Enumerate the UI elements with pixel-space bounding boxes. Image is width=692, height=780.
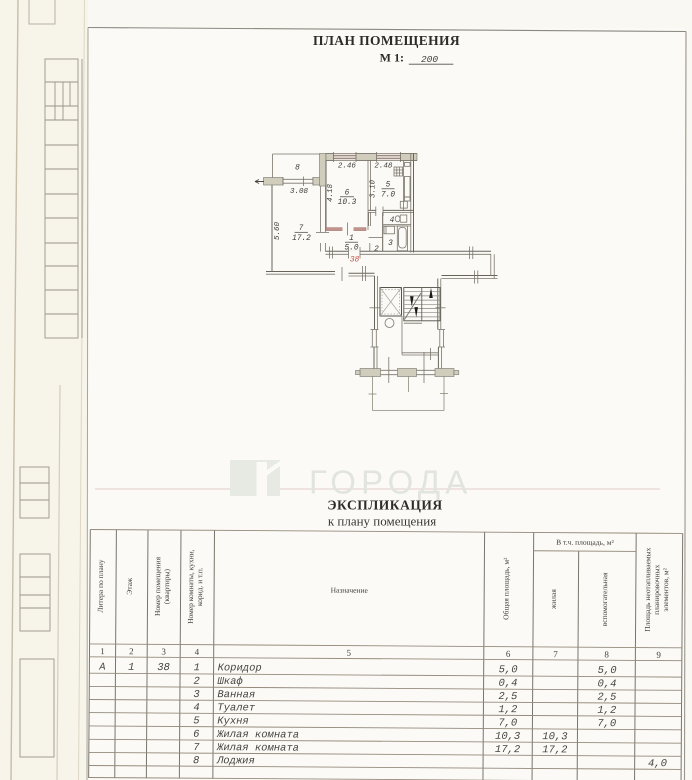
svg-text:6: 6 (345, 190, 350, 198)
svg-text:к плану помещения: к плану помещения (328, 514, 436, 529)
svg-text:1: 1 (349, 235, 354, 243)
svg-text:7: 7 (299, 225, 304, 233)
svg-text:5.60: 5.60 (274, 222, 282, 241)
svg-text:6: 6 (193, 729, 199, 741)
svg-text:Шкаф: Шкаф (216, 675, 243, 688)
svg-text:ГОРОДА: ГОРОДА (309, 464, 472, 501)
svg-text:5: 5 (193, 715, 200, 727)
svg-text:7,0: 7,0 (597, 718, 616, 730)
svg-text:8: 8 (604, 649, 609, 659)
svg-text:Этаж: Этаж (125, 577, 134, 595)
svg-text:10,3: 10,3 (542, 731, 567, 743)
svg-text:5: 5 (347, 648, 352, 658)
svg-text:0,4: 0,4 (498, 678, 517, 690)
svg-text:200: 200 (421, 54, 438, 65)
svg-text:Коридор: Коридор (218, 662, 262, 674)
svg-text:10.3: 10.3 (338, 199, 357, 207)
svg-text:6: 6 (506, 649, 511, 659)
svg-text:8: 8 (193, 755, 199, 767)
svg-text:2,5: 2,5 (597, 692, 617, 704)
svg-text:17,2: 17,2 (495, 744, 520, 756)
svg-text:7.0: 7.0 (381, 192, 395, 200)
svg-text:планировочных: планировочных (652, 564, 661, 615)
svg-text:0,4: 0,4 (597, 678, 616, 690)
svg-text:2.46: 2.46 (338, 163, 357, 171)
svg-text:1,2: 1,2 (498, 704, 517, 716)
svg-text:3.10: 3.10 (369, 180, 377, 199)
svg-text:Жилая комната: Жилая комната (216, 742, 299, 755)
svg-text:7: 7 (553, 649, 558, 659)
svg-text:1: 1 (100, 646, 105, 656)
svg-text:корид. и т.п.: корид. и т.п. (195, 567, 204, 606)
svg-text:4: 4 (195, 647, 200, 657)
svg-text:2.48: 2.48 (374, 163, 393, 171)
svg-text:Кухня: Кухня (217, 716, 249, 728)
svg-text:2,5: 2,5 (498, 691, 518, 703)
svg-text:4: 4 (390, 217, 395, 225)
svg-text:3: 3 (161, 646, 166, 656)
svg-text:В т.ч. площадь, м²: В т.ч. площадь, м² (556, 538, 614, 547)
svg-text:38: 38 (350, 256, 360, 265)
svg-text:7: 7 (193, 742, 200, 754)
svg-text:Номер помещения: Номер помещения (153, 556, 162, 616)
svg-text:ЭКСПЛИКАЦИЯ: ЭКСПЛИКАЦИЯ (327, 498, 442, 513)
svg-text:Назначение: Назначение (331, 586, 369, 595)
svg-text:5,0: 5,0 (499, 664, 518, 676)
svg-text:(квартиры): (квартиры) (162, 568, 171, 604)
svg-text:38: 38 (157, 662, 170, 674)
svg-text:7,0: 7,0 (498, 717, 517, 729)
svg-text:Ванная: Ванная (217, 689, 255, 701)
svg-text:вспомогательная: вспомогательная (600, 572, 609, 626)
svg-text:Площадь неотапливаемых: Площадь неотапливаемых (643, 547, 653, 631)
svg-text:Лоджия: Лоджия (216, 755, 255, 767)
svg-text:Жилая комната: Жилая комната (216, 729, 299, 742)
svg-text:жилая: жилая (549, 589, 558, 610)
svg-text:10,3: 10,3 (495, 731, 520, 743)
svg-text:Общая площадь, м²: Общая площадь, м² (501, 557, 510, 620)
svg-text:3: 3 (388, 240, 393, 248)
svg-text:17.2: 17.2 (292, 235, 311, 243)
svg-text:2: 2 (129, 646, 134, 656)
svg-text:2: 2 (374, 246, 379, 254)
svg-text:17,2: 17,2 (542, 744, 567, 756)
svg-text:2: 2 (194, 676, 200, 688)
svg-text:4,0: 4,0 (648, 758, 667, 770)
svg-text:Литера по плану: Литера по плану (96, 559, 105, 612)
svg-text:1: 1 (194, 662, 200, 674)
svg-text:1,2: 1,2 (597, 705, 616, 717)
svg-text:3: 3 (193, 689, 199, 701)
svg-text:М 1:: М 1: (380, 51, 404, 65)
svg-text:элементов, м²: элементов, м² (661, 567, 670, 611)
svg-text:9: 9 (656, 650, 661, 660)
svg-text:5,0: 5,0 (598, 665, 617, 677)
svg-text:4: 4 (193, 702, 199, 714)
svg-text:Номер комнаты, кухни,: Номер комнаты, кухни, (186, 549, 195, 624)
svg-text:ПЛАН ПОМЕЩЕНИЯ: ПЛАН ПОМЕЩЕНИЯ (313, 33, 460, 48)
svg-text:Туалет: Туалет (217, 702, 256, 714)
svg-text:4.18: 4.18 (327, 184, 335, 203)
svg-text:5: 5 (386, 182, 391, 190)
svg-text:А: А (98, 662, 105, 674)
svg-text:1: 1 (128, 662, 134, 674)
svg-text:8: 8 (295, 165, 300, 173)
svg-text:3.08: 3.08 (290, 188, 309, 196)
